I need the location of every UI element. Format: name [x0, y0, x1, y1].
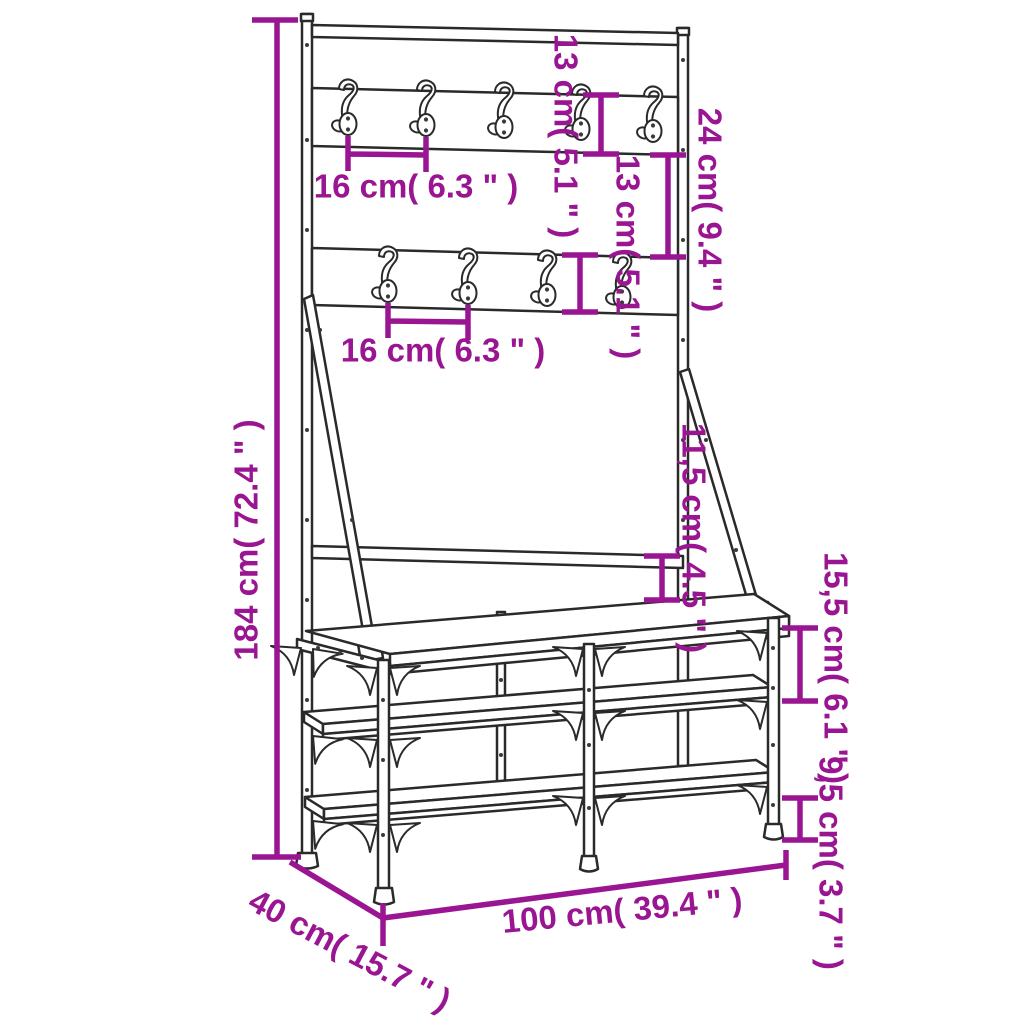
- dimension-label-height: 184 cm( 72.4 " ): [230, 419, 263, 660]
- hook-board-1: [312, 88, 678, 155]
- dimension-label-board1-height: 13 cm( 5.1 " ): [550, 34, 583, 239]
- top-rail: [312, 25, 678, 45]
- dimension-label-rail-to-bench: 11,5 cm( 4.5 " ): [678, 423, 711, 653]
- dimension-label-hook-spacing-row2: 16 cm( 6.3 " ): [341, 334, 546, 367]
- dimension-label-bench-to-shelf: 15,5 cm( 6.1 " ): [820, 552, 853, 784]
- front-left-leg: [378, 660, 389, 890]
- bench-top: [297, 594, 789, 674]
- furniture-line-art: [0, 0, 1024, 1024]
- dimension-label-board-gap: 24 cm( 9.4 " ): [694, 108, 727, 313]
- bench-to-shelf-line: [782, 628, 818, 701]
- middle-shelf: [304, 675, 772, 740]
- center-front-leg: [584, 644, 594, 858]
- dimension-label-board2-height: 13 cm( 5.1 " ): [612, 155, 645, 360]
- dimension-diagram: 184 cm( 72.4 " ) 16 cm( 6.3 " ) 13 cm( 5…: [0, 0, 1024, 1024]
- dimension-label-shelf-to-floor: 9,5 cm( 3.7 " ): [815, 756, 848, 970]
- back-bottom-rail: [312, 546, 683, 568]
- bottom-shelf: [305, 760, 775, 825]
- dimension-label-hook-spacing-row1: 16 cm( 6.3 " ): [314, 170, 519, 203]
